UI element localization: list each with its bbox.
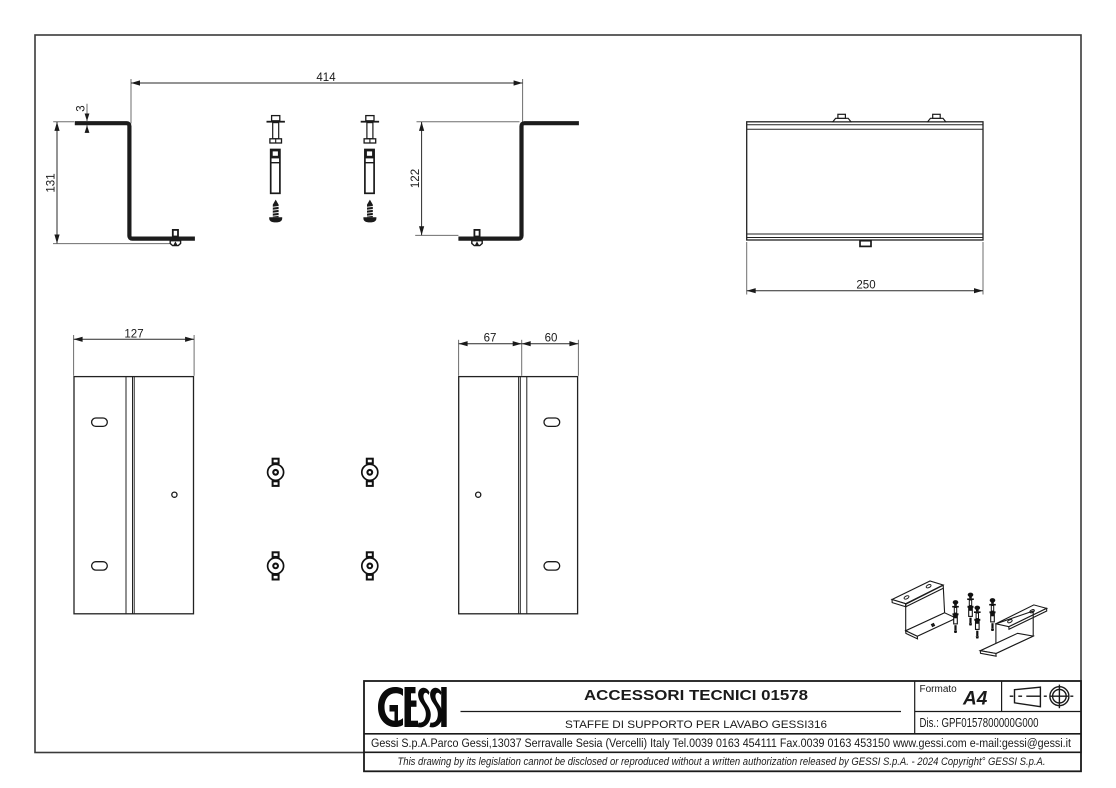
svg-text:ACCESSORI TECNICI 01578: ACCESSORI TECNICI 01578 [584, 688, 808, 704]
svg-text:67: 67 [484, 333, 497, 345]
svg-text:This drawing by its legislatio: This drawing by its legislation cannot b… [398, 756, 1046, 768]
svg-text:3: 3 [76, 105, 88, 111]
svg-text:60: 60 [545, 333, 558, 345]
svg-text:Formato: Formato [920, 684, 958, 695]
svg-text:127: 127 [124, 328, 143, 340]
svg-text:131: 131 [46, 173, 58, 192]
svg-text:250: 250 [856, 280, 875, 292]
svg-text:A4: A4 [962, 689, 988, 710]
svg-text:Dis.: GPF0157800000G000: Dis.: GPF0157800000G000 [920, 716, 1039, 730]
svg-text:STAFFE DI SUPPORTO PER LAVABO: STAFFE DI SUPPORTO PER LAVABO GESSI316 [565, 719, 827, 731]
svg-text:Gessi S.p.A.Parco Gessi,13037: Gessi S.p.A.Parco Gessi,13037 Serravalle… [371, 736, 1072, 750]
svg-text:414: 414 [316, 72, 336, 84]
svg-text:122: 122 [410, 169, 422, 188]
